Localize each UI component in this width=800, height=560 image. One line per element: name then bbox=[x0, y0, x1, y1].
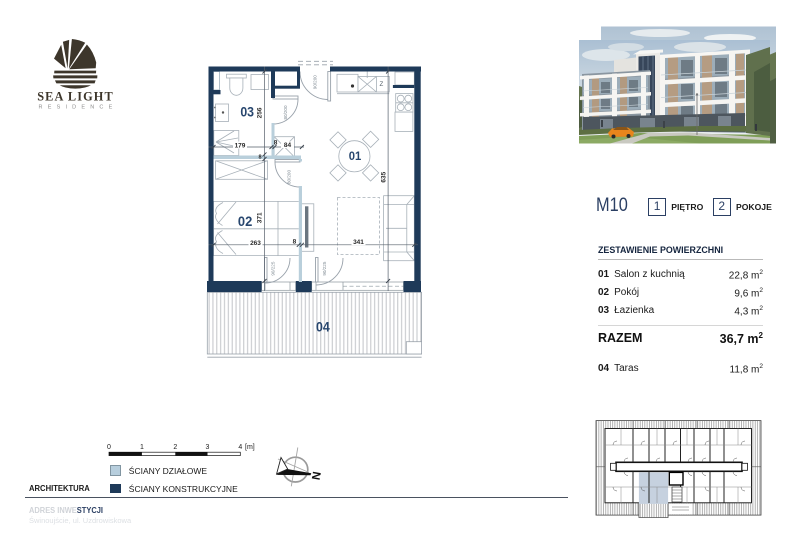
svg-text:2: 2 bbox=[173, 444, 177, 451]
svg-text:263: 263 bbox=[250, 240, 261, 247]
svg-text:90/225: 90/225 bbox=[271, 261, 276, 275]
svg-text:635: 635 bbox=[381, 171, 388, 182]
svg-text:3: 3 bbox=[206, 444, 210, 451]
svg-text:80/200: 80/200 bbox=[287, 170, 292, 184]
svg-text:Z: Z bbox=[380, 81, 384, 88]
svg-text:8: 8 bbox=[258, 155, 261, 161]
svg-text:256: 256 bbox=[257, 107, 264, 118]
svg-text:0: 0 bbox=[107, 444, 111, 451]
svg-text:04: 04 bbox=[316, 320, 330, 335]
svg-text:80/200: 80/200 bbox=[283, 105, 288, 119]
svg-text:RESIDENCE: RESIDENCE bbox=[39, 105, 118, 111]
svg-text:179: 179 bbox=[235, 143, 246, 150]
svg-text:03: 03 bbox=[240, 105, 254, 120]
svg-text:1: 1 bbox=[140, 444, 144, 451]
svg-text:N: N bbox=[309, 470, 322, 480]
svg-text:SEA LIGHT: SEA LIGHT bbox=[37, 89, 114, 103]
svg-text:90/200: 90/200 bbox=[313, 75, 318, 89]
svg-text:4: 4 bbox=[238, 444, 242, 451]
svg-text:8: 8 bbox=[274, 140, 278, 147]
svg-text:02: 02 bbox=[238, 214, 252, 229]
svg-text:90/225: 90/225 bbox=[322, 261, 327, 275]
svg-text:84: 84 bbox=[284, 142, 292, 149]
svg-text:[m]: [m] bbox=[245, 444, 255, 451]
svg-text:341: 341 bbox=[353, 239, 364, 246]
svg-text:8: 8 bbox=[293, 239, 297, 246]
svg-text:01: 01 bbox=[349, 149, 362, 163]
svg-text:371: 371 bbox=[257, 212, 264, 223]
